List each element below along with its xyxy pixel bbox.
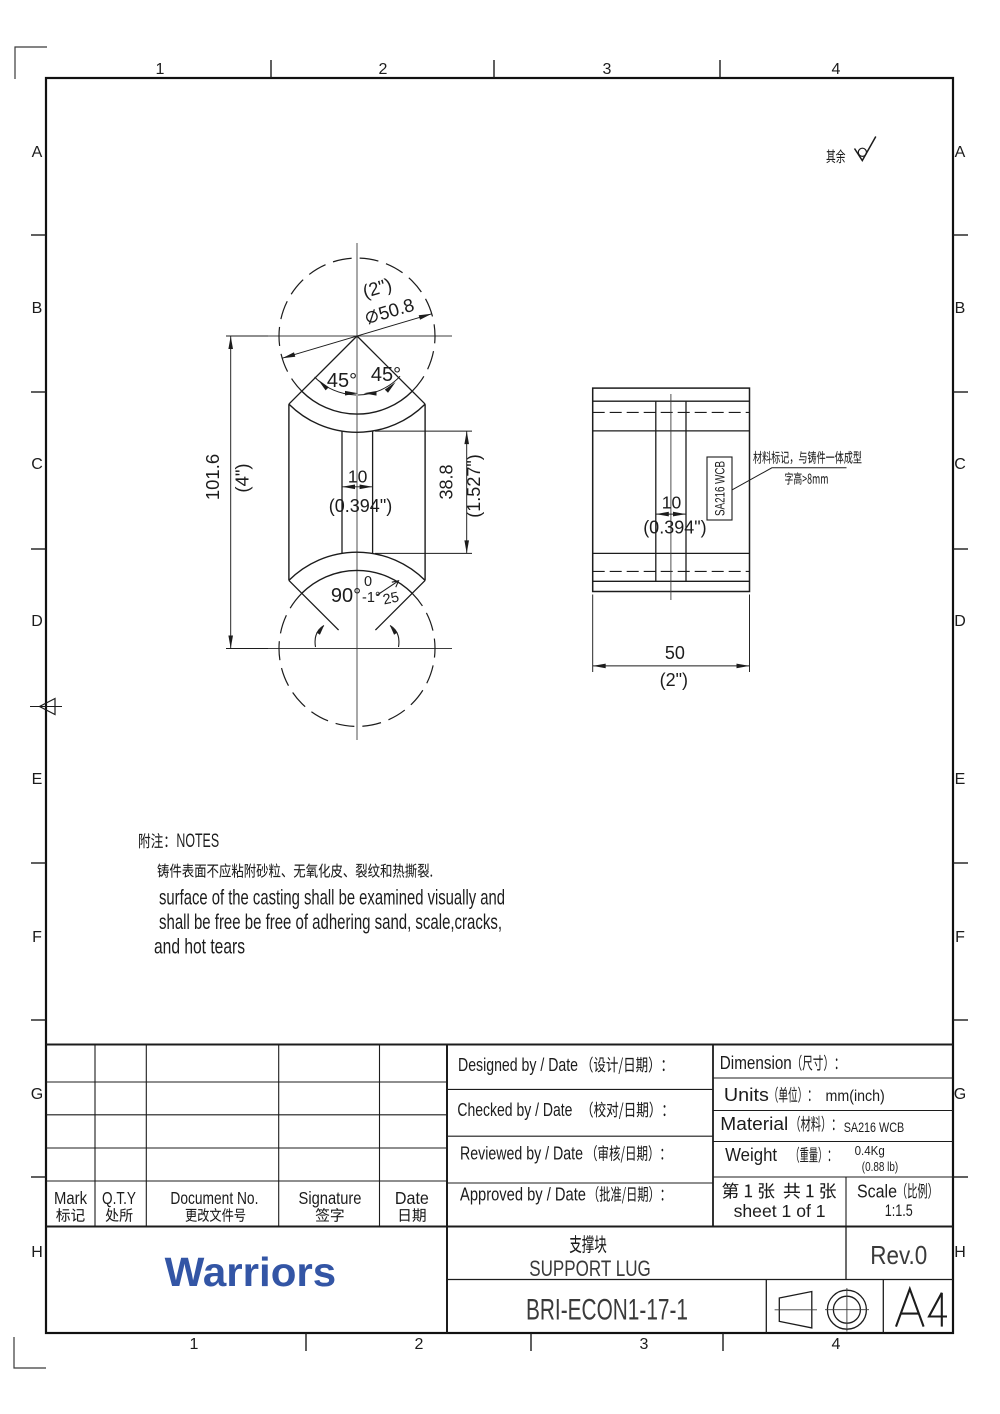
svg-text:0.4Kg: 0.4Kg xyxy=(855,1144,885,1158)
svg-text:1: 1 xyxy=(190,1336,199,1353)
svg-text:2: 2 xyxy=(415,1336,424,1353)
svg-text:(0.394"): (0.394") xyxy=(643,518,706,538)
svg-text:Weight: Weight xyxy=(725,1145,777,1165)
svg-text:Q.T.Y: Q.T.Y xyxy=(102,1188,136,1208)
svg-text:SA216 WCB: SA216 WCB xyxy=(844,1119,905,1135)
svg-text:E: E xyxy=(32,771,43,788)
svg-text:101.6: 101.6 xyxy=(202,454,223,500)
svg-text:Approved by / Date: Approved by / Date xyxy=(460,1184,586,1205)
svg-text:B: B xyxy=(955,300,966,317)
svg-text:mm(inch): mm(inch) xyxy=(826,1088,885,1105)
svg-text:C: C xyxy=(954,456,966,473)
svg-text:Document No.: Document No. xyxy=(170,1188,258,1208)
svg-text:2: 2 xyxy=(379,61,388,78)
svg-text:D: D xyxy=(31,613,43,630)
svg-text:G: G xyxy=(31,1086,43,1103)
svg-text:Rev.0: Rev.0 xyxy=(870,1240,927,1270)
svg-text:4: 4 xyxy=(832,1336,841,1353)
svg-text:F: F xyxy=(32,929,42,946)
svg-text:BRI-ECON1-17-1: BRI-ECON1-17-1 xyxy=(526,1294,688,1327)
svg-text:4: 4 xyxy=(832,61,841,78)
svg-text:SUPPORT LUG: SUPPORT LUG xyxy=(529,1256,651,1281)
svg-text:45°: 45° xyxy=(371,364,401,386)
svg-text:Checked by / Date: Checked by / Date xyxy=(457,1099,572,1120)
svg-text:H: H xyxy=(954,1244,966,1261)
svg-text:-1°: -1° xyxy=(362,590,381,606)
svg-text:Dimension: Dimension xyxy=(720,1053,792,1073)
svg-text:Date: Date xyxy=(395,1188,429,1208)
svg-text:C: C xyxy=(31,456,43,473)
svg-text:sheet 1 of 1: sheet 1 of 1 xyxy=(734,1201,826,1221)
svg-text:Scale: Scale xyxy=(857,1181,897,1201)
svg-text:38.8: 38.8 xyxy=(437,464,457,499)
svg-text:NOTES: NOTES xyxy=(176,831,219,852)
svg-text:0: 0 xyxy=(364,574,372,590)
svg-text:3: 3 xyxy=(603,61,612,78)
svg-text:SA216 WCB: SA216 WCB xyxy=(713,461,728,516)
svg-text:Reviewed by / Date: Reviewed by / Date xyxy=(460,1143,583,1164)
svg-text:1:1.5: 1:1.5 xyxy=(885,1201,913,1220)
svg-text:and hot tears: and hot tears xyxy=(154,936,245,959)
svg-text:(0.394"): (0.394") xyxy=(329,496,392,516)
svg-text:D: D xyxy=(954,613,966,630)
svg-text:Units: Units xyxy=(724,1085,769,1105)
svg-text:surface of the casting shall b: surface of the casting shall be examined… xyxy=(159,887,505,910)
svg-text:Designed by / Date: Designed by / Date xyxy=(458,1054,578,1075)
svg-text:10: 10 xyxy=(662,492,682,512)
svg-text:(0.88 lb): (0.88 lb) xyxy=(862,1160,898,1174)
svg-text:A: A xyxy=(32,144,43,161)
svg-text:Warriors: Warriors xyxy=(165,1249,337,1295)
svg-text:45°: 45° xyxy=(327,370,357,392)
svg-text:G: G xyxy=(954,1086,966,1103)
svg-text:F: F xyxy=(955,929,965,946)
svg-text:shall be free be free of adher: shall be free be free of adhering sand, … xyxy=(159,911,502,934)
svg-text:90°: 90° xyxy=(331,585,361,607)
svg-text:(1.527"): (1.527") xyxy=(464,454,484,517)
svg-text:(4"): (4") xyxy=(232,463,253,492)
svg-text:Material: Material xyxy=(720,1114,788,1134)
svg-text:50: 50 xyxy=(665,643,685,663)
svg-text:A: A xyxy=(955,144,966,161)
svg-text:Signature: Signature xyxy=(299,1188,362,1208)
svg-text:E: E xyxy=(955,771,966,788)
svg-text:1: 1 xyxy=(156,61,165,78)
svg-text:(2"): (2") xyxy=(660,670,688,690)
svg-text:3: 3 xyxy=(640,1336,649,1353)
svg-text:B: B xyxy=(32,300,43,317)
svg-text:25: 25 xyxy=(382,589,401,608)
svg-text:H: H xyxy=(31,1244,43,1261)
svg-text:10: 10 xyxy=(348,467,368,487)
svg-text:Mark: Mark xyxy=(54,1188,87,1208)
